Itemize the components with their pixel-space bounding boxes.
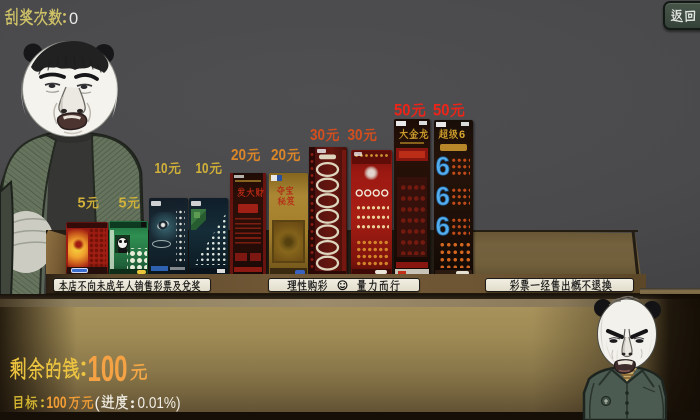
svg-text:30: 30 bbox=[310, 127, 325, 144]
svg-text:30: 30 bbox=[348, 127, 363, 144]
svg-text:0: 0 bbox=[69, 10, 78, 28]
svg-text:100: 100 bbox=[88, 348, 128, 389]
svg-text:5: 5 bbox=[78, 195, 86, 212]
svg-text:20: 20 bbox=[231, 147, 246, 164]
svg-text:100: 100 bbox=[47, 393, 67, 412]
svg-text:50: 50 bbox=[433, 101, 450, 120]
svg-text:6: 6 bbox=[459, 129, 465, 141]
svg-text:5: 5 bbox=[119, 195, 127, 212]
svg-text:(: ( bbox=[95, 395, 101, 412]
svg-text:6: 6 bbox=[436, 151, 450, 181]
svg-text:50: 50 bbox=[394, 101, 411, 120]
svg-text:0.01%): 0.01%) bbox=[138, 395, 181, 412]
svg-text:10: 10 bbox=[155, 160, 168, 177]
svg-text:6: 6 bbox=[436, 181, 450, 211]
svg-text:6: 6 bbox=[436, 211, 450, 241]
svg-text:10: 10 bbox=[196, 160, 209, 177]
svg-text:20: 20 bbox=[271, 147, 286, 164]
